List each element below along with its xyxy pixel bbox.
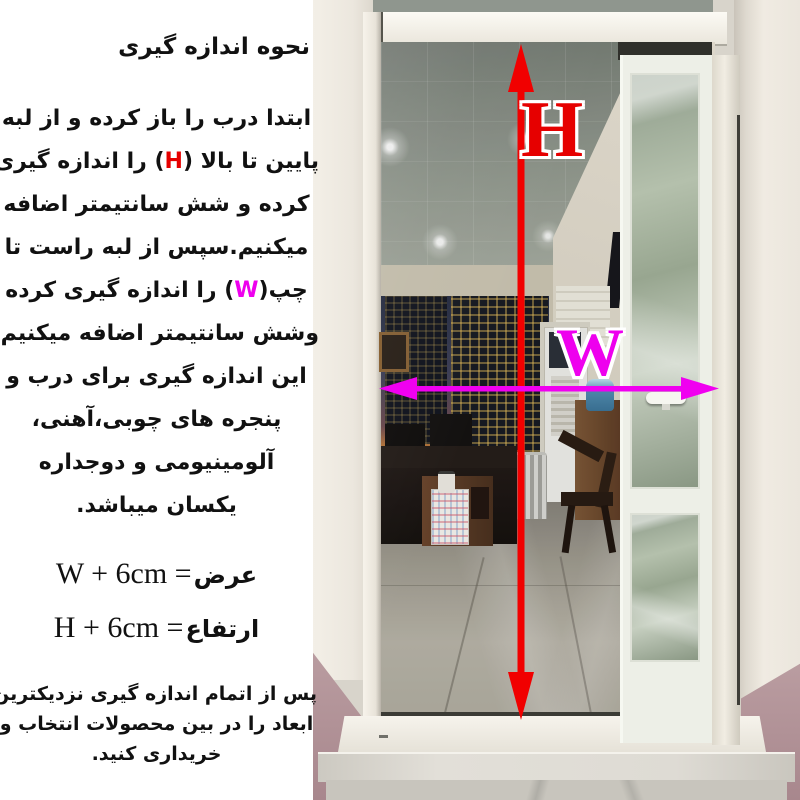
height-formula: H + 6cm =ارتفاع xyxy=(0,603,313,657)
width-formula-expression: W + 6cm = xyxy=(56,557,192,590)
text-line: آلومینیومی و دوجداره xyxy=(0,441,319,484)
purchase-note: پس از اتمام اندازه گیری نزدیکترینابعاد ر… xyxy=(0,679,317,769)
text-segment: میکنیم.سپس از لبه راست تا xyxy=(5,235,309,260)
text-segment: ابعاد را در بین محصولات انتخاب و xyxy=(0,713,313,735)
text-line: پس از اتمام اندازه گیری نزدیکترین xyxy=(0,679,317,709)
text-line: ابعاد را در بین محصولات انتخاب و xyxy=(0,709,317,739)
width-formula-label: عرض xyxy=(194,561,258,589)
text-line: پایین تا بالا (H) را اندازه گیری xyxy=(0,140,319,183)
text-segment: وشش سانتیمتر اضافه میکنیم. xyxy=(0,321,319,346)
highlighted-letter: W xyxy=(234,278,258,303)
text-segment: ابتدا درب را باز کرده و از لبه xyxy=(2,106,311,131)
text-line: خریداری کنید. xyxy=(0,739,317,769)
text-segment: یکسان میباشد. xyxy=(76,493,237,518)
text-segment: ) را اندازه گیری xyxy=(0,149,165,174)
instruction-panel: نحوه اندازه گیری ابتدا درب را باز کرده و… xyxy=(0,0,313,800)
width-formula: W + 6cm =عرض xyxy=(0,549,313,603)
text-segment: پس از اتمام اندازه گیری نزدیکترین xyxy=(0,683,317,705)
doorway-photo: H W xyxy=(313,0,800,800)
formula-block: W + 6cm =عرض H + 6cm =ارتفاع xyxy=(0,549,313,657)
text-line: میکنیم.سپس از لبه راست تا xyxy=(0,226,319,269)
page-title: نحوه اندازه گیری xyxy=(0,34,310,60)
measurement-instructions: ابتدا درب را باز کرده و از لبهپایین تا ب… xyxy=(0,97,319,527)
text-line: یکسان میباشد. xyxy=(0,484,319,527)
width-label: W xyxy=(556,318,624,386)
highlighted-letter: H xyxy=(165,149,183,174)
height-formula-expression: H + 6cm = xyxy=(54,611,184,644)
width-arrow xyxy=(379,377,719,400)
text-line: پنجره های چوبی،آهنی، xyxy=(0,398,319,441)
text-line: این اندازه گیری برای درب و xyxy=(0,355,319,398)
text-segment: آلومینیومی و دوجداره xyxy=(39,450,275,475)
text-segment: خریداری کنید. xyxy=(92,743,222,765)
height-formula-label: ارتفاع xyxy=(185,615,259,643)
text-segment: پنجره های چوبی،آهنی، xyxy=(32,407,282,432)
text-segment: چپ( xyxy=(259,278,308,303)
text-segment: این اندازه گیری برای درب و xyxy=(6,364,307,389)
text-segment: ) را اندازه گیری کرده xyxy=(5,278,234,303)
text-line: چپ(W) را اندازه گیری کرده xyxy=(0,269,319,312)
text-line: ابتدا درب را باز کرده و از لبه xyxy=(0,97,319,140)
text-segment: پایین تا بالا ( xyxy=(183,149,319,174)
height-label: H xyxy=(521,90,583,170)
text-line: کرده و شش سانتیمتر اضافه xyxy=(0,183,319,226)
text-line: وشش سانتیمتر اضافه میکنیم. xyxy=(0,312,319,355)
text-segment: کرده و شش سانتیمتر اضافه xyxy=(3,192,309,217)
